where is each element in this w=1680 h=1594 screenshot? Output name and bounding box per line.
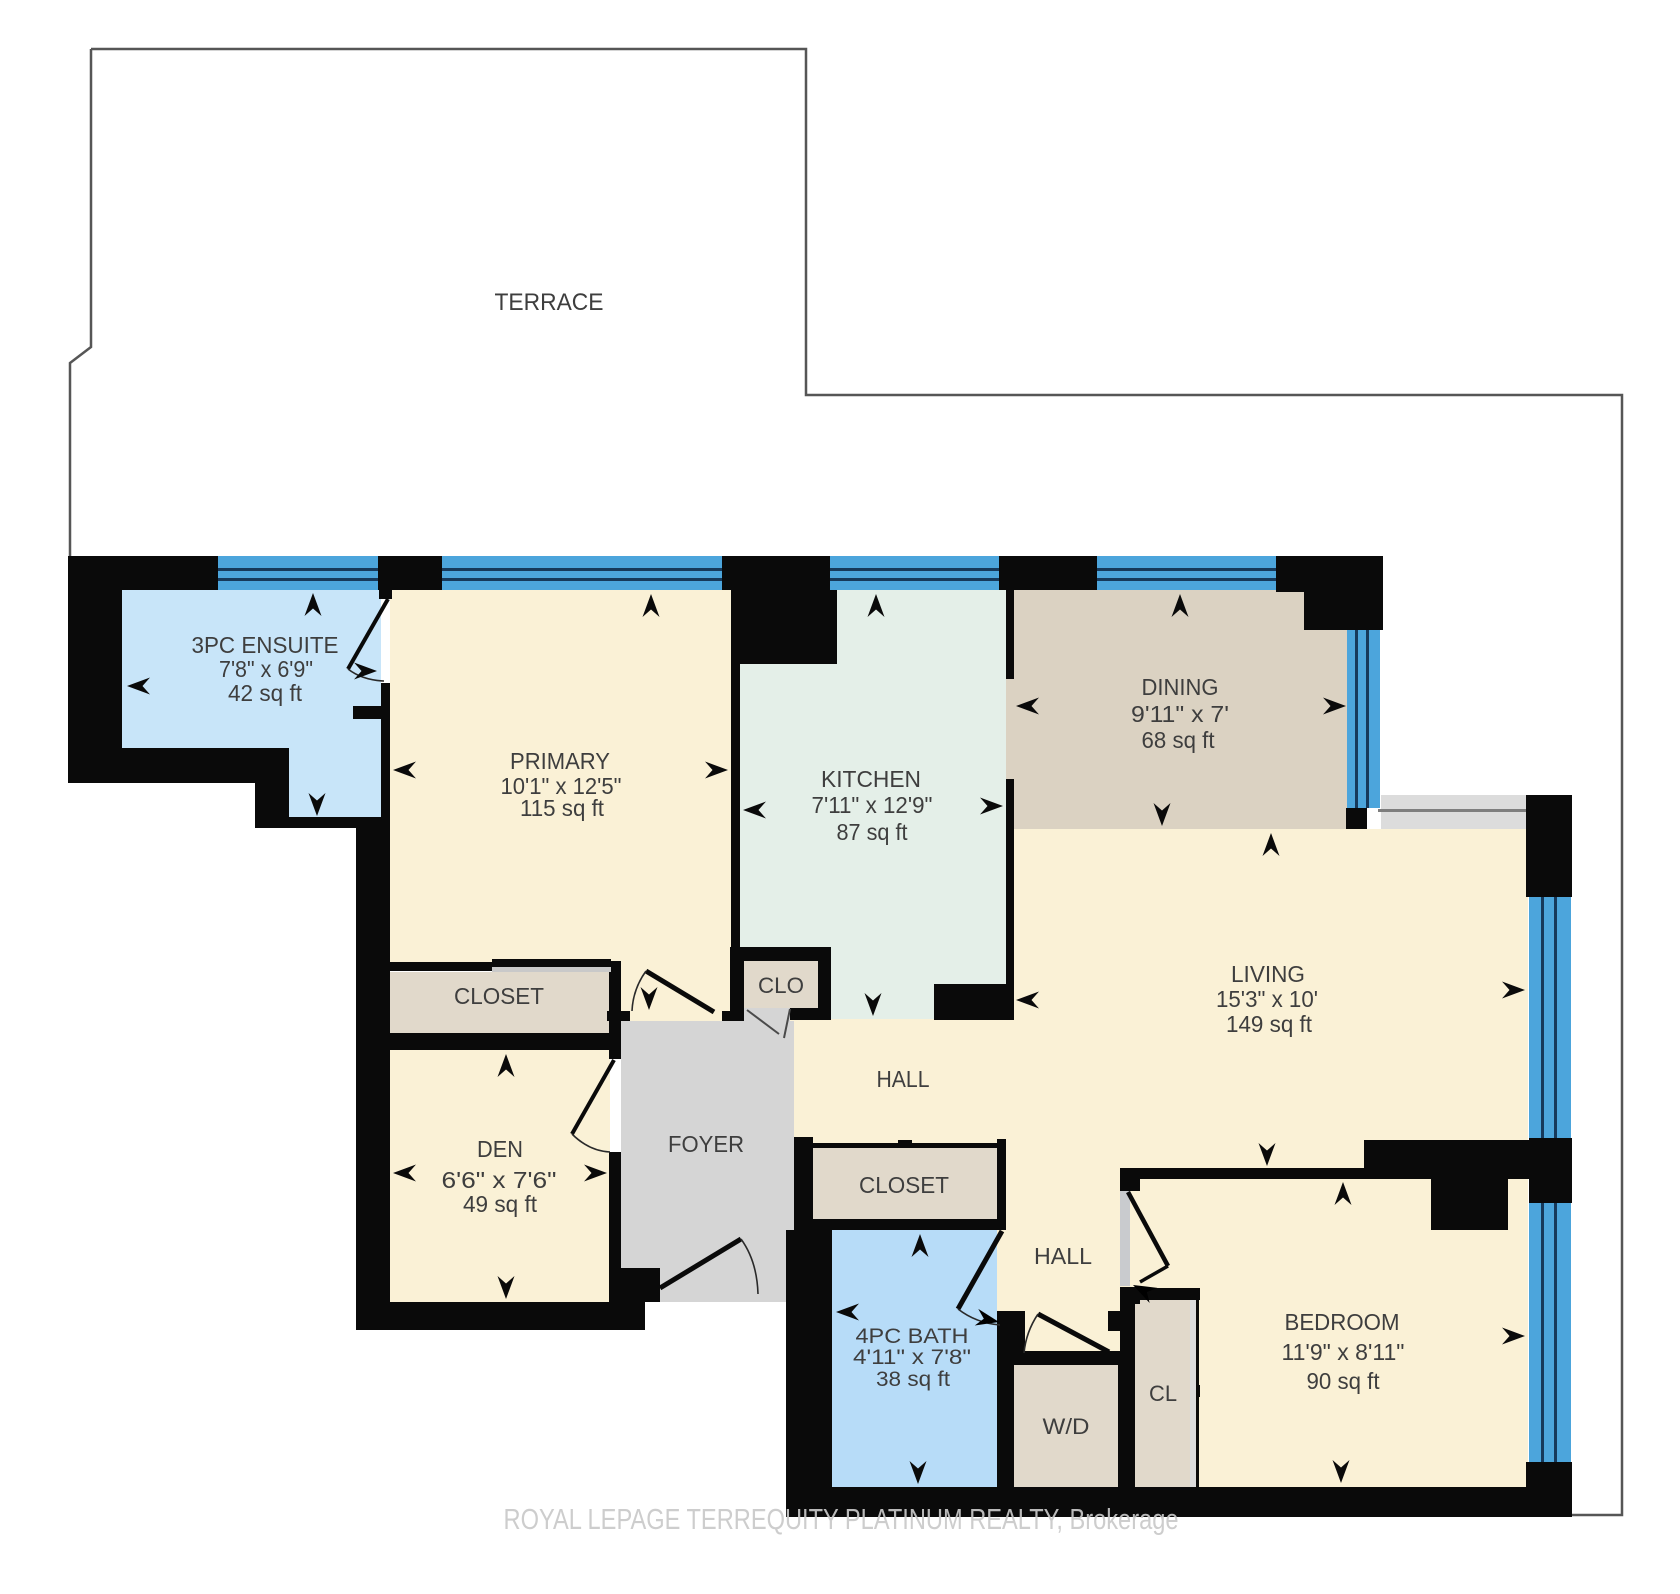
svg-text:87 sq ft: 87 sq ft	[837, 819, 908, 845]
svg-text:HALL: HALL	[1034, 1243, 1092, 1269]
svg-text:15'3" x 10': 15'3" x 10'	[1216, 986, 1318, 1012]
svg-text:CLOSET: CLOSET	[454, 983, 544, 1009]
svg-text:KITCHEN: KITCHEN	[821, 766, 921, 792]
svg-text:3PC ENSUITE: 3PC ENSUITE	[192, 632, 339, 658]
svg-text:CLO: CLO	[758, 973, 804, 998]
svg-text:9'11" x 7': 9'11" x 7'	[1131, 701, 1229, 727]
svg-text:49 sq ft: 49 sq ft	[463, 1191, 537, 1217]
svg-text:7'8" x 6'9": 7'8" x 6'9"	[219, 656, 313, 682]
svg-text:6'6" x 7'6": 6'6" x 7'6"	[442, 1167, 557, 1193]
svg-text:LIVING: LIVING	[1231, 961, 1305, 987]
svg-text:38 sq ft: 38 sq ft	[876, 1367, 950, 1391]
svg-text:FOYER: FOYER	[668, 1131, 744, 1157]
svg-text:115 sq ft: 115 sq ft	[520, 795, 604, 821]
svg-text:7'11" x 12'9": 7'11" x 12'9"	[812, 792, 933, 818]
svg-text:PRIMARY: PRIMARY	[510, 748, 610, 774]
svg-text:CLOSET: CLOSET	[859, 1172, 949, 1198]
svg-text:TERRACE: TERRACE	[495, 289, 604, 316]
svg-text:4'11" x 7'8": 4'11" x 7'8"	[853, 1345, 971, 1369]
svg-text:CL: CL	[1149, 1381, 1177, 1406]
svg-text:ROYAL LEPAGE TERREQUITY PLATIN: ROYAL LEPAGE TERREQUITY PLATINUM REALTY,…	[504, 1504, 1179, 1536]
svg-text:149 sq ft: 149 sq ft	[1226, 1011, 1312, 1037]
svg-text:BEDROOM: BEDROOM	[1285, 1309, 1400, 1335]
svg-text:DINING: DINING	[1142, 674, 1219, 700]
svg-text:HALL: HALL	[877, 1066, 930, 1092]
svg-text:W/D: W/D	[1043, 1414, 1090, 1439]
svg-text:DEN: DEN	[477, 1136, 523, 1162]
svg-text:68 sq ft: 68 sq ft	[1142, 727, 1215, 753]
svg-text:42 sq ft: 42 sq ft	[228, 680, 302, 706]
svg-text:90 sq ft: 90 sq ft	[1307, 1368, 1380, 1394]
svg-text:11'9" x 8'11": 11'9" x 8'11"	[1282, 1339, 1405, 1365]
